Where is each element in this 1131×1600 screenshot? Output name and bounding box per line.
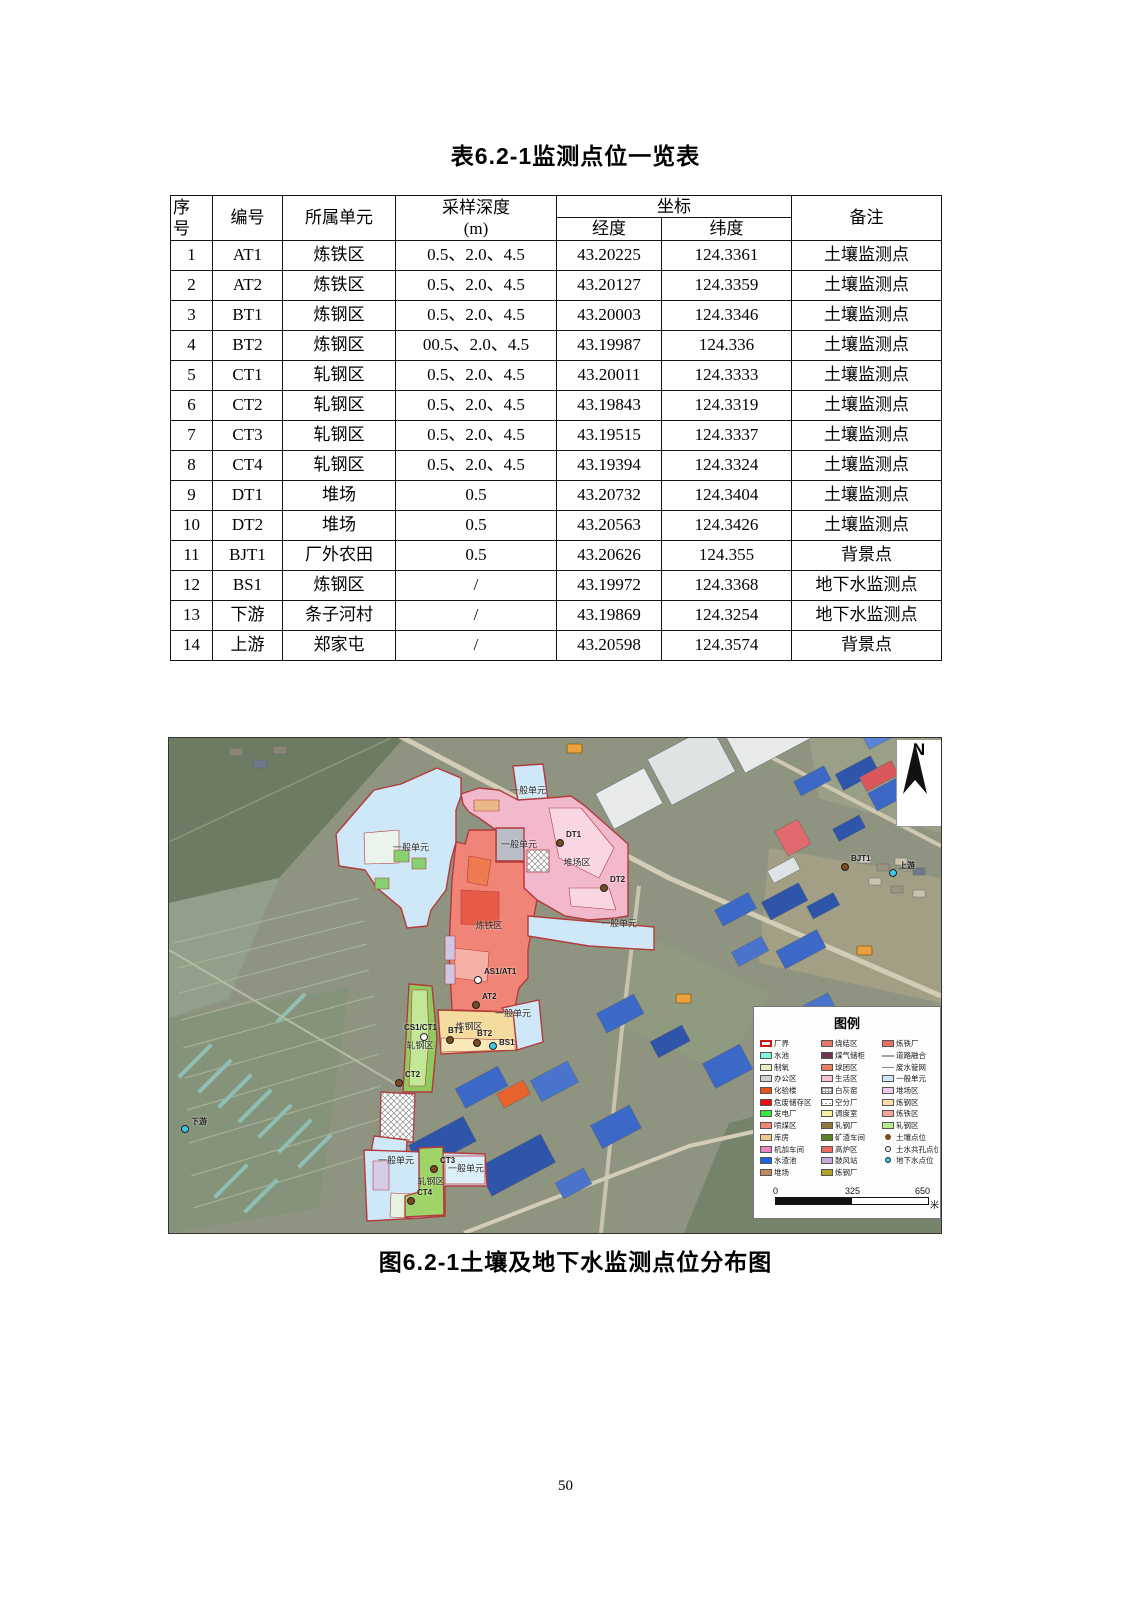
- legend-item: 机加车间: [760, 1143, 821, 1155]
- soil-point-legend-icon: [882, 1134, 894, 1141]
- table-cell: DT2: [213, 510, 283, 540]
- legend-item: 空分厂: [821, 1096, 882, 1108]
- table-cell: 0.5: [396, 510, 557, 540]
- header-longitude: 经度: [557, 218, 662, 240]
- document-page: 表6.2-1监测点位一览表 序 号 编号 所属单元 采样深度 (m) 坐标 备注: [0, 0, 1131, 1600]
- table-row: 14上游郑家屯/43.20598124.3574背景点: [171, 630, 942, 660]
- monitoring-points-table: 序 号 编号 所属单元 采样深度 (m) 坐标 备注 经度 纬度 1AT1炼铁区…: [170, 195, 942, 661]
- table-cell: 9: [171, 480, 213, 510]
- groundwater-point-legend-icon: [882, 1157, 894, 1164]
- table-cell: 土壤监测点: [792, 330, 942, 360]
- table-row: 2AT2炼铁区0.5、2.0、4.543.20127124.3359土壤监测点: [171, 270, 942, 300]
- table-cell: 地下水监测点: [792, 570, 942, 600]
- legend-swatch: [882, 1040, 894, 1047]
- legend-swatch: [760, 1157, 772, 1164]
- table-cell: 土壤监测点: [792, 420, 942, 450]
- table-cell: 13: [171, 600, 213, 630]
- table-cell: 124.3333: [662, 360, 792, 390]
- legend-swatch: [882, 1075, 894, 1082]
- scale-bar: 0 325 650 米: [767, 1186, 939, 1205]
- table-cell: 地下水监测点: [792, 600, 942, 630]
- legend-item: 库房: [760, 1132, 821, 1144]
- legend-item: 炼钢区: [882, 1096, 938, 1108]
- table-cell: AT2: [213, 270, 283, 300]
- legend-swatch: [821, 1146, 833, 1153]
- table-cell: 0.5、2.0、4.5: [396, 450, 557, 480]
- legend-item: 煤气储柜: [821, 1050, 882, 1062]
- legend-item: 废水管网: [882, 1061, 938, 1073]
- legend-item: 道路融合: [882, 1050, 938, 1062]
- table-cell: 0.5: [396, 480, 557, 510]
- legend-item: 鼓风站: [821, 1155, 882, 1167]
- table-cell: 6: [171, 390, 213, 420]
- table-cell: 3: [171, 300, 213, 330]
- legend-columns: 厂界 水池 制氧 办公区 化验楼 危废储存区 发电厂 喷煤区 库房 机加车间 水…: [760, 1038, 938, 1178]
- figure-caption: 图6.2-1土壤及地下水监测点位分布图: [170, 1243, 941, 1277]
- table-cell: 124.3426: [662, 510, 792, 540]
- table-cell: 背景点: [792, 540, 942, 570]
- table-cell: 14: [171, 630, 213, 660]
- table-cell: 炼钢区: [283, 570, 396, 600]
- table-row: 3BT1炼钢区0.5、2.0、4.543.20003124.3346土壤监测点: [171, 300, 942, 330]
- table-cell: 炼钢区: [283, 330, 396, 360]
- legend-swatch: [760, 1052, 772, 1059]
- table-cell: 124.3368: [662, 570, 792, 600]
- table-cell: 43.19987: [557, 330, 662, 360]
- legend-item: 制氧: [760, 1061, 821, 1073]
- groundwater-point-icon: [889, 869, 897, 877]
- table-cell: 43.20225: [557, 240, 662, 270]
- table-cell: BS1: [213, 570, 283, 600]
- table-cell: 124.3337: [662, 420, 792, 450]
- legend-swatch: [760, 1122, 772, 1129]
- legend-swatch: [821, 1122, 833, 1129]
- table-cell: 43.20003: [557, 300, 662, 330]
- header-no: 序 号: [171, 196, 213, 241]
- table-row: 10DT2堆场0.543.20563124.3426土壤监测点: [171, 510, 942, 540]
- soil-point-icon: [600, 884, 608, 892]
- table-cell: 堆场: [283, 510, 396, 540]
- legend-swatch: [760, 1075, 772, 1082]
- table-cell: 124.3324: [662, 450, 792, 480]
- legend-item: 一般单元: [882, 1073, 938, 1085]
- table-cell: 郑家屯: [283, 630, 396, 660]
- table-cell: 124.3404: [662, 480, 792, 510]
- legend-item: 地下水点位: [882, 1155, 938, 1167]
- table-cell: 上游: [213, 630, 283, 660]
- legend-item: 水池: [760, 1050, 821, 1062]
- legend-item: 堆场区: [882, 1085, 938, 1097]
- table-cell: BT1: [213, 300, 283, 330]
- legend-item: 炼铁区: [882, 1108, 938, 1120]
- legend-swatch: [821, 1169, 833, 1176]
- header-coord: 坐标: [557, 196, 792, 218]
- table-cell: 堆场: [283, 480, 396, 510]
- table-cell: 124.3346: [662, 300, 792, 330]
- legend-item: 土壤点位: [882, 1132, 938, 1144]
- legend-swatch: [760, 1064, 772, 1071]
- table-cell: 0.5: [396, 540, 557, 570]
- table-cell: 厂外农田: [283, 540, 396, 570]
- legend-item: 危废储存区: [760, 1096, 821, 1108]
- soil-point-icon: [472, 1001, 480, 1009]
- legend-column-2: 烧结区 煤气储柜 球团区 生活区 白灰窑 空分厂 调度室 轧钢厂 矿渣车间 高炉…: [821, 1038, 882, 1178]
- table-row: 8CT4轧钢区0.5、2.0、4.543.19394124.3324土壤监测点: [171, 450, 942, 480]
- table-row: 6CT2轧钢区0.5、2.0、4.543.19843124.3319土壤监测点: [171, 390, 942, 420]
- zone-label: 一般单元: [510, 784, 546, 797]
- table-cell: 43.20626: [557, 540, 662, 570]
- groundwater-point-icon: [489, 1042, 497, 1050]
- legend-swatch: [882, 1099, 894, 1106]
- table-cell: 8: [171, 450, 213, 480]
- soil-point-icon: [407, 1197, 415, 1205]
- soil-point-icon: [395, 1079, 403, 1087]
- legend-swatch: [760, 1146, 772, 1153]
- table-cell: 10: [171, 510, 213, 540]
- legend-swatch: [821, 1052, 833, 1059]
- scale-ticks: 0 325 650: [767, 1186, 939, 1197]
- legend-swatch: [760, 1087, 772, 1094]
- table-cell: 2: [171, 270, 213, 300]
- legend-swatch: [760, 1134, 772, 1141]
- legend-item: 喷煤区: [760, 1120, 821, 1132]
- table-cell: AT1: [213, 240, 283, 270]
- zone-label: 一般单元: [601, 917, 637, 930]
- table-cell: 43.20598: [557, 630, 662, 660]
- legend-item: 办公区: [760, 1073, 821, 1085]
- table-cell: DT1: [213, 480, 283, 510]
- legend-swatch: [882, 1110, 894, 1117]
- table-cell: 43.19972: [557, 570, 662, 600]
- table-cell: 124.336: [662, 330, 792, 360]
- legend-swatch: [821, 1064, 833, 1071]
- table-cell: 124.3319: [662, 390, 792, 420]
- table-cell: 轧钢区: [283, 390, 396, 420]
- zone-label: 堆场区: [563, 856, 590, 869]
- table-title: 表6.2-1监测点位一览表: [170, 137, 941, 171]
- legend-title: 图例: [754, 1013, 940, 1032]
- legend-swatch: [821, 1157, 833, 1164]
- page-number: 50: [0, 1478, 1131, 1495]
- soil-point-icon: [473, 1039, 481, 1047]
- table-cell: 炼铁区: [283, 240, 396, 270]
- north-arrow-icon: [897, 740, 933, 798]
- table-cell: CT1: [213, 360, 283, 390]
- table-cell: 下游: [213, 600, 283, 630]
- legend-swatch-limekiln: [821, 1087, 833, 1094]
- table-cell: 124.355: [662, 540, 792, 570]
- legend-swatch-road-icon: [882, 1052, 894, 1059]
- table-row: 13下游条子河村/43.19869124.3254地下水监测点: [171, 600, 942, 630]
- table-cell: 轧钢区: [283, 360, 396, 390]
- legend-item: 轧钢厂: [821, 1120, 882, 1132]
- table-row: 1AT1炼铁区0.5、2.0、4.543.20225124.3361土壤监测点: [171, 240, 942, 270]
- shared-point-legend-icon: [882, 1146, 894, 1153]
- table-cell: BT2: [213, 330, 283, 360]
- table-cell: 土壤监测点: [792, 240, 942, 270]
- header-unit: 所属单元: [283, 196, 396, 241]
- table-cell: 炼钢区: [283, 300, 396, 330]
- header-depth: 采样深度 (m): [396, 196, 557, 241]
- table-cell: 1: [171, 240, 213, 270]
- legend-column-1: 厂界 水池 制氧 办公区 化验楼 危废储存区 发电厂 喷煤区 库房 机加车间 水…: [760, 1038, 821, 1178]
- table-cell: 土壤监测点: [792, 300, 942, 330]
- table-cell: 0.5、2.0、4.5: [396, 360, 557, 390]
- zone-label: 轧钢区: [406, 1039, 433, 1052]
- table-cell: 0.5、2.0、4.5: [396, 300, 557, 330]
- legend-item: 轧钢区: [882, 1120, 938, 1132]
- table-cell: 43.20563: [557, 510, 662, 540]
- legend-item: 厂界: [760, 1038, 821, 1050]
- legend-swatch: [882, 1087, 894, 1094]
- table-cell: CT3: [213, 420, 283, 450]
- table-cell: CT2: [213, 390, 283, 420]
- table-cell: 背景点: [792, 630, 942, 660]
- legend-item: 调度室: [821, 1108, 882, 1120]
- scale-unit: 米: [930, 1198, 939, 1211]
- table-cell: 5: [171, 360, 213, 390]
- table-cell: 土壤监测点: [792, 450, 942, 480]
- soil-point-icon: [841, 863, 849, 871]
- legend-swatch: [882, 1122, 894, 1129]
- legend-item: 发电厂: [760, 1108, 821, 1120]
- table-cell: 43.19515: [557, 420, 662, 450]
- legend-swatch: [760, 1110, 772, 1117]
- table-cell: 124.3574: [662, 630, 792, 660]
- table-cell: 124.3359: [662, 270, 792, 300]
- table-cell: 43.19843: [557, 390, 662, 420]
- table-cell: 4: [171, 330, 213, 360]
- legend-item: 生活区: [821, 1073, 882, 1085]
- legend-item: 球团区: [821, 1061, 882, 1073]
- table-cell: BJT1: [213, 540, 283, 570]
- table-cell: 7: [171, 420, 213, 450]
- table-cell: 12: [171, 570, 213, 600]
- table-row: 4BT2炼钢区00.5、2.0、4.543.19987124.336土壤监测点: [171, 330, 942, 360]
- header-latitude: 纬度: [662, 218, 792, 240]
- legend-item: 土水共孔点位: [882, 1143, 938, 1155]
- header-code: 编号: [213, 196, 283, 241]
- legend-item: 堆场: [760, 1167, 821, 1179]
- table-cell: 条子河村: [283, 600, 396, 630]
- table-cell: 土壤监测点: [792, 390, 942, 420]
- table-row: 7CT3轧钢区0.5、2.0、4.543.19515124.3337土壤监测点: [171, 420, 942, 450]
- zone-label: 一般单元: [501, 838, 537, 851]
- table-cell: 轧钢区: [283, 450, 396, 480]
- zone-label: 轧钢区: [417, 1175, 444, 1188]
- table-cell: 土壤监测点: [792, 480, 942, 510]
- shared-point-icon: [474, 976, 482, 984]
- table-cell: /: [396, 570, 557, 600]
- legend-item: 化验楼: [760, 1085, 821, 1097]
- legend-swatch: [821, 1134, 833, 1141]
- table-cell: /: [396, 630, 557, 660]
- table-cell: 0.5、2.0、4.5: [396, 390, 557, 420]
- table-cell: 0.5、2.0、4.5: [396, 270, 557, 300]
- table-row: 9DT1堆场0.543.20732124.3404土壤监测点: [171, 480, 942, 510]
- table-cell: 43.20127: [557, 270, 662, 300]
- legend-item: 水渣池: [760, 1155, 821, 1167]
- table-cell: 43.20011: [557, 360, 662, 390]
- table-cell: 00.5、2.0、4.5: [396, 330, 557, 360]
- table-cell: 炼铁区: [283, 270, 396, 300]
- legend-swatch-boundary: [760, 1040, 772, 1047]
- legend-swatch-pipeline-icon: [882, 1064, 894, 1071]
- legend-item: 炼钢厂: [821, 1167, 882, 1179]
- soil-point-icon: [556, 839, 564, 847]
- table-cell: 43.20732: [557, 480, 662, 510]
- legend-swatch-airseparation: [821, 1099, 833, 1106]
- table-cell: 土壤监测点: [792, 270, 942, 300]
- table-row: 11BJT1厂外农田0.543.20626124.355背景点: [171, 540, 942, 570]
- legend-swatch: [821, 1040, 833, 1047]
- legend-swatch: [821, 1110, 833, 1117]
- table-cell: 轧钢区: [283, 420, 396, 450]
- table-cell: 124.3361: [662, 240, 792, 270]
- table-cell: 土壤监测点: [792, 510, 942, 540]
- north-arrow: N: [896, 740, 941, 827]
- zone-label: 一般单元: [495, 1007, 531, 1020]
- groundwater-point-icon: [181, 1125, 189, 1133]
- table-cell: 43.19394: [557, 450, 662, 480]
- zone-label: 一般单元: [393, 841, 429, 854]
- table-cell: 124.3254: [662, 600, 792, 630]
- table-header-row: 序 号 编号 所属单元 采样深度 (m) 坐标 备注: [171, 196, 942, 218]
- legend-column-3: 炼铁厂 道路融合 废水管网 一般单元 堆场区 炼钢区 炼铁区 轧钢区 土壤点位 …: [882, 1038, 938, 1178]
- zone-label: 一般单元: [378, 1154, 414, 1167]
- site-map-figure: 一般单元 一般单元 一般单元 堆场区 一般单元 炼铁区 一般单元 炼钢区 轧钢区…: [168, 737, 942, 1234]
- legend-item: 白灰窑: [821, 1085, 882, 1097]
- table-cell: /: [396, 600, 557, 630]
- legend-item: 烧结区: [821, 1038, 882, 1050]
- scale-bar-graphic: [775, 1197, 929, 1205]
- legend-swatch: [821, 1075, 833, 1082]
- soil-point-icon: [430, 1165, 438, 1173]
- table-cell: 0.5、2.0、4.5: [396, 420, 557, 450]
- legend-item: 高炉区: [821, 1143, 882, 1155]
- table-cell: 0.5、2.0、4.5: [396, 240, 557, 270]
- legend-item: 矿渣车间: [821, 1132, 882, 1144]
- table-row: 5CT1轧钢区0.5、2.0、4.543.20011124.3333土壤监测点: [171, 360, 942, 390]
- table-cell: 11: [171, 540, 213, 570]
- header-remark: 备注: [792, 196, 942, 241]
- legend-item: 炼铁厂: [882, 1038, 938, 1050]
- table-cell: CT4: [213, 450, 283, 480]
- shared-point-icon: [420, 1033, 428, 1041]
- table-cell: 43.19869: [557, 600, 662, 630]
- zone-label: 炼铁区: [475, 919, 502, 932]
- legend-swatch: [760, 1169, 772, 1176]
- soil-point-icon: [446, 1036, 454, 1044]
- legend-swatch: [760, 1099, 772, 1106]
- table-cell: 土壤监测点: [792, 360, 942, 390]
- table-row: 12BS1炼钢区/43.19972124.3368地下水监测点: [171, 570, 942, 600]
